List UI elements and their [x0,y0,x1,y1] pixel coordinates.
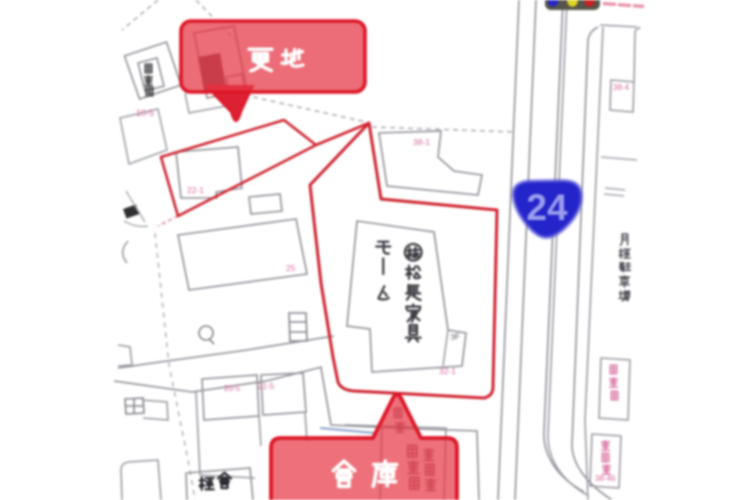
svg-text:38-4: 38-4 [613,83,630,92]
svg-text:38-46: 38-46 [595,474,616,483]
svg-text:3F: 3F [450,332,461,342]
svg-text:38-1: 38-1 [413,137,430,147]
svg-text:10-5: 10-5 [136,108,154,118]
svg-text:22-1: 22-1 [187,185,204,195]
svg-text:21-5: 21-5 [258,382,275,391]
svg-text:25: 25 [286,263,296,273]
svg-text:20-5: 20-5 [224,384,241,393]
svg-text:32-1: 32-1 [439,366,456,376]
svg-text:24: 24 [526,187,568,228]
